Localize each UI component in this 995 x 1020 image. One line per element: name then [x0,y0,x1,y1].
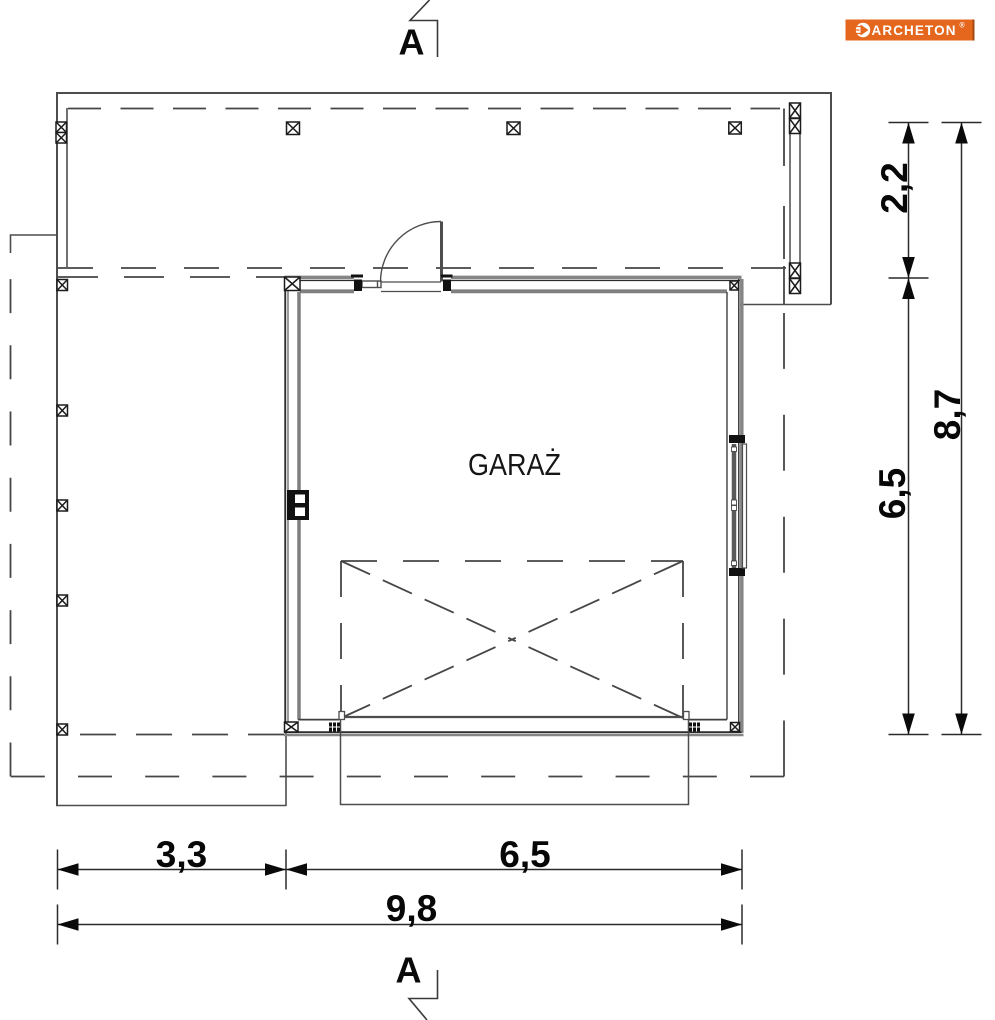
svg-text:®: ® [960,22,966,30]
svg-text:8,7: 8,7 [927,389,968,440]
svg-text:2,2: 2,2 [874,162,915,213]
svg-text:6,5: 6,5 [499,834,550,875]
svg-text:ARCHETON: ARCHETON [872,23,957,38]
svg-text:9,8: 9,8 [386,888,437,929]
svg-text:A: A [399,22,425,63]
svg-text:3,3: 3,3 [156,834,207,875]
svg-text:A: A [396,950,422,991]
svg-text:GARAŻ: GARAŻ [468,447,561,482]
svg-text:6,5: 6,5 [872,468,913,519]
